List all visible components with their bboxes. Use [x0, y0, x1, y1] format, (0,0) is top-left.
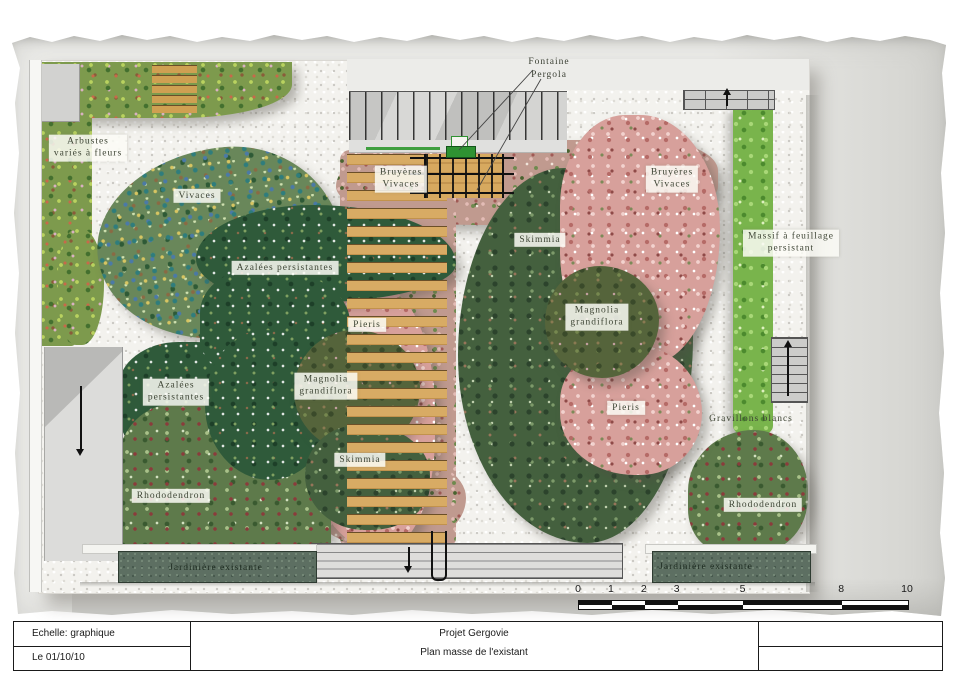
wood-plank-path [347, 154, 447, 544]
scale-segment-3-5 [678, 601, 744, 609]
garden-plan: Fontaine Pergola Arbustes variés à fleur… [0, 0, 960, 679]
plant-label-magnolia-grandiflora-left: Magnolia grandiflora [294, 373, 357, 400]
scale-bar: 01235810 [576, 583, 908, 613]
driveway-arrow-head [76, 449, 84, 456]
left-wall [29, 60, 42, 592]
project-title: Projet Gergovie [190, 628, 758, 639]
outside-top-band [347, 59, 809, 90]
title-block-hline-left [14, 646, 190, 647]
right-wall-shadow [806, 95, 820, 592]
scale-segment-half [579, 605, 612, 609]
stairs-top-right-arrow-head [723, 88, 731, 95]
scale-segment-half [743, 605, 842, 609]
plant-label-massif-feuillage-persistant: Massif à feuillage persistant [743, 230, 839, 257]
scale-segment-5-8 [743, 601, 842, 609]
scale-tick-5: 5 [740, 583, 746, 595]
scale-tick-2: 2 [641, 583, 647, 595]
scale-tick-1: 1 [608, 583, 614, 595]
plant-label-pieris-left: Pieris [348, 318, 386, 332]
plant-label-jardiniere-right: Jardinière existante [659, 561, 753, 573]
title-block: Echelle: graphique Le 01/10/10 Projet Ge… [13, 621, 943, 671]
stairs-top-right-arrow-line [726, 94, 728, 106]
steps-bottom [311, 543, 623, 579]
scale-bar-segments [578, 600, 909, 610]
plant-label-gravillons-blancs: Gravillons blancs [709, 413, 793, 425]
terrace [349, 91, 567, 142]
callout-fontaine: Fontaine [528, 57, 569, 67]
scale-segment-half [645, 605, 678, 609]
walkway-green-edge [366, 147, 440, 150]
plant-label-azalees-persistantes-bottom: Azalées persistantes [143, 379, 209, 406]
plant-label-rhododendron-right: Rhododendron [724, 498, 802, 512]
scale-tick-0: 0 [575, 583, 581, 595]
steps-bottom-arrow-head [404, 566, 412, 573]
stairs-right-arrow-head [784, 340, 792, 347]
plant-label-azalees-persistantes-top: Azalées persistantes [232, 261, 339, 275]
scale-tick-3: 3 [674, 583, 680, 595]
plant-label-magnolia-grandiflora-right: Magnolia grandiflora [565, 304, 628, 331]
scale-bar-ticks: 01235810 [578, 583, 907, 596]
drawing-title: Plan masse de l'existant [190, 647, 758, 658]
steps-bottom-arrow-line [408, 547, 410, 567]
scale-segment-8-10 [842, 601, 908, 609]
fountain [446, 146, 476, 158]
scale-segment-half [842, 605, 908, 609]
bed-rhododendron-right [688, 430, 808, 552]
plant-label-bruyeres-vivaces-left: Bruyères Vivaces [375, 166, 427, 193]
date-label: Le 01/10/10 [32, 652, 85, 663]
title-block-hline-right [758, 646, 942, 647]
scale-segment-0-1 [579, 601, 612, 609]
scale-segment-1-2 [612, 601, 645, 609]
scale-tick-10: 10 [901, 583, 913, 595]
driveway-arrow-line [80, 386, 82, 450]
scale-segment-half [612, 605, 645, 609]
driveway-slope-shading [45, 347, 122, 427]
plant-label-skimmia-left: Skimmia [334, 453, 385, 467]
stairs-right-arrow-line [787, 346, 789, 396]
plant-label-vivaces: Vivaces [173, 189, 220, 203]
handrail [431, 531, 447, 581]
scale-mode-label: Echelle: graphique [32, 628, 115, 639]
landscape-plan-sheet: { "title_block": { "scale_label": "Echel… [0, 0, 960, 679]
plant-label-bruyeres-vivaces-right: Bruyères Vivaces [646, 166, 698, 193]
scale-segment-half [678, 605, 744, 609]
bed-massif-hedge [733, 104, 773, 436]
wood-steps-top-left [152, 65, 197, 113]
callout-pergola: Pergola [531, 70, 567, 80]
plant-label-pieris-right: Pieris [607, 401, 645, 415]
plant-label-rhododendron-left: Rhododendron [132, 489, 210, 503]
paved-corner-top-left [41, 64, 80, 122]
plant-label-jardiniere-left: Jardinière existante [169, 562, 263, 574]
plant-label-arbustes-varies: Arbustes variés à fleurs [49, 135, 127, 162]
scale-tick-8: 8 [838, 583, 844, 595]
plant-label-skimmia-right: Skimmia [514, 233, 565, 247]
scale-segment-2-3 [645, 601, 678, 609]
